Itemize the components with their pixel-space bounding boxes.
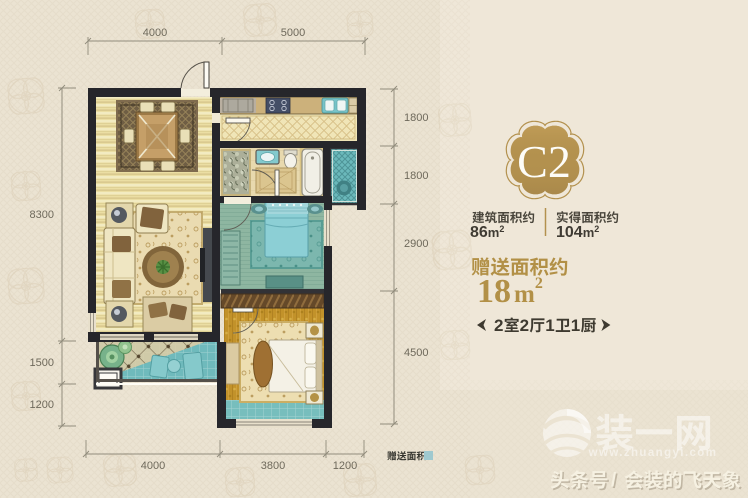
- svg-text:8300: 8300: [30, 209, 54, 221]
- svg-text:1200: 1200: [333, 460, 357, 472]
- svg-text:www.zhuangyi.com: www.zhuangyi.com: [588, 447, 718, 459]
- svg-text:2900: 2900: [404, 238, 428, 250]
- svg-text:1800: 1800: [404, 170, 428, 182]
- svg-text:2: 2: [494, 316, 503, 335]
- svg-text:1: 1: [545, 316, 554, 335]
- svg-text:1500: 1500: [30, 357, 54, 369]
- svg-text:1200: 1200: [30, 399, 54, 411]
- svg-text:4000: 4000: [141, 460, 165, 472]
- svg-text:4500: 4500: [404, 347, 428, 359]
- svg-text:104m2: 104m2: [556, 224, 599, 241]
- svg-text:4000: 4000: [143, 27, 167, 39]
- svg-text:3800: 3800: [261, 460, 285, 472]
- svg-text:C2: C2: [517, 136, 571, 187]
- svg-text:1800: 1800: [404, 112, 428, 124]
- svg-text:86m2: 86m2: [470, 224, 504, 241]
- svg-text:1: 1: [571, 316, 580, 335]
- svg-text:/: /: [611, 470, 617, 491]
- svg-text:5000: 5000: [281, 27, 305, 39]
- svg-text:2: 2: [520, 316, 529, 335]
